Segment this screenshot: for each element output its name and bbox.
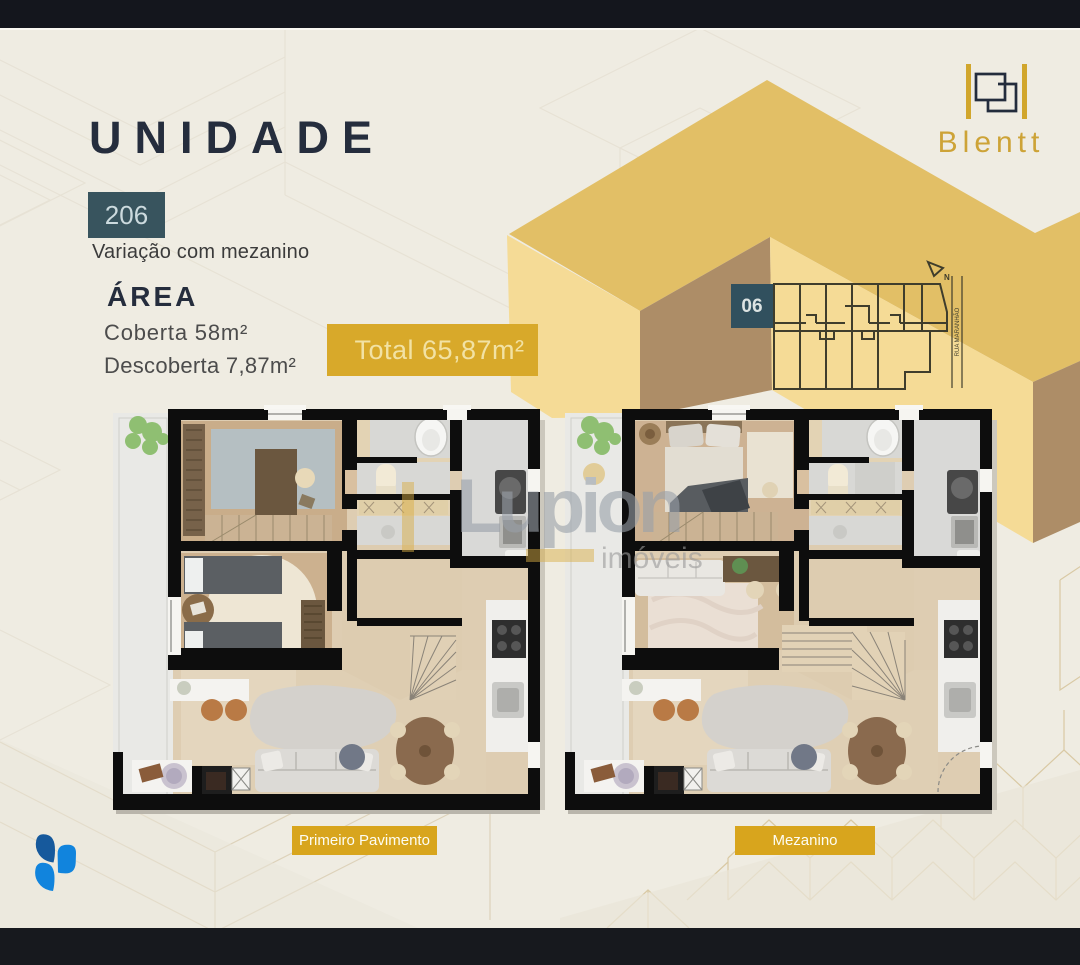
svg-text:RUA MARANHÃO: RUA MARANHÃO	[954, 307, 961, 356]
svg-text:Lupion: Lupion	[456, 464, 680, 549]
svg-text:06: 06	[741, 296, 762, 317]
svg-text:imóveis: imóveis	[601, 542, 703, 575]
svg-text:Blentt: Blentt	[938, 126, 1045, 159]
svg-text:N: N	[944, 273, 950, 282]
